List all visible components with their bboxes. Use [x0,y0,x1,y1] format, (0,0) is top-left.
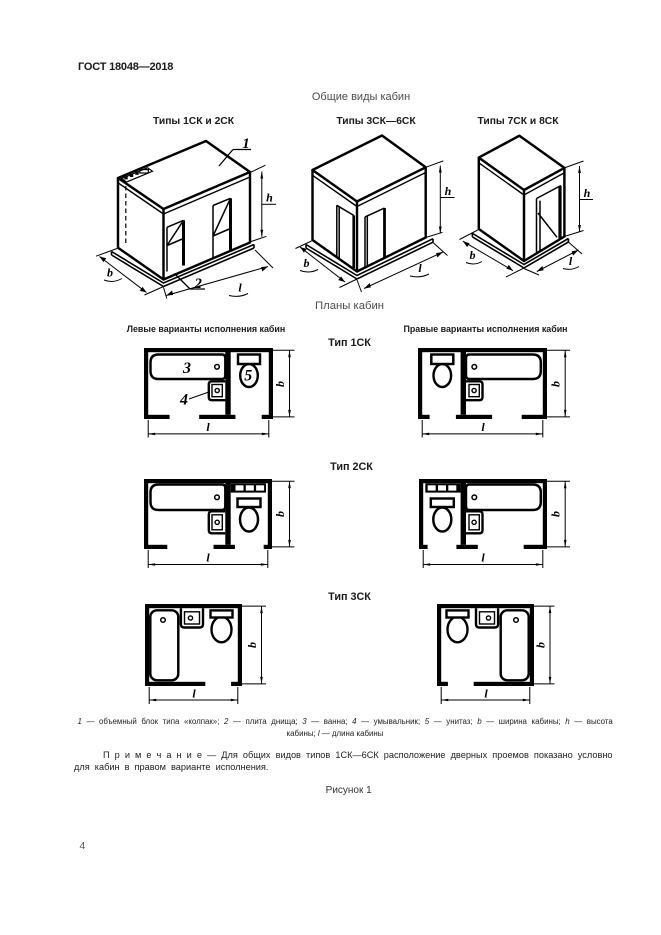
svg-text:l: l [481,420,485,434]
svg-text:b: b [273,381,287,387]
svg-text:b: b [245,642,259,648]
svg-text:b: b [107,266,113,280]
svg-text:b: b [549,511,563,517]
svg-text:l: l [481,551,485,565]
svg-text:l: l [206,551,210,565]
svg-text:h: h [584,186,591,200]
svg-text:1: 1 [242,136,250,152]
svg-text:4: 4 [179,392,188,409]
svg-text:2: 2 [194,276,202,292]
svg-text:b: b [304,256,310,270]
svg-text:l: l [418,261,422,275]
svg-text:l: l [569,254,573,268]
svg-text:b: b [534,642,548,648]
svg-text:l: l [206,420,210,434]
svg-text:h: h [266,191,273,205]
svg-text:l: l [238,281,242,295]
svg-text:l: l [484,687,488,701]
svg-text:b: b [273,511,287,517]
svg-text:l: l [192,687,196,701]
svg-text:b: b [470,248,476,262]
svg-text:5: 5 [244,367,252,384]
svg-text:3: 3 [182,360,191,377]
svg-text:b: b [549,381,563,387]
